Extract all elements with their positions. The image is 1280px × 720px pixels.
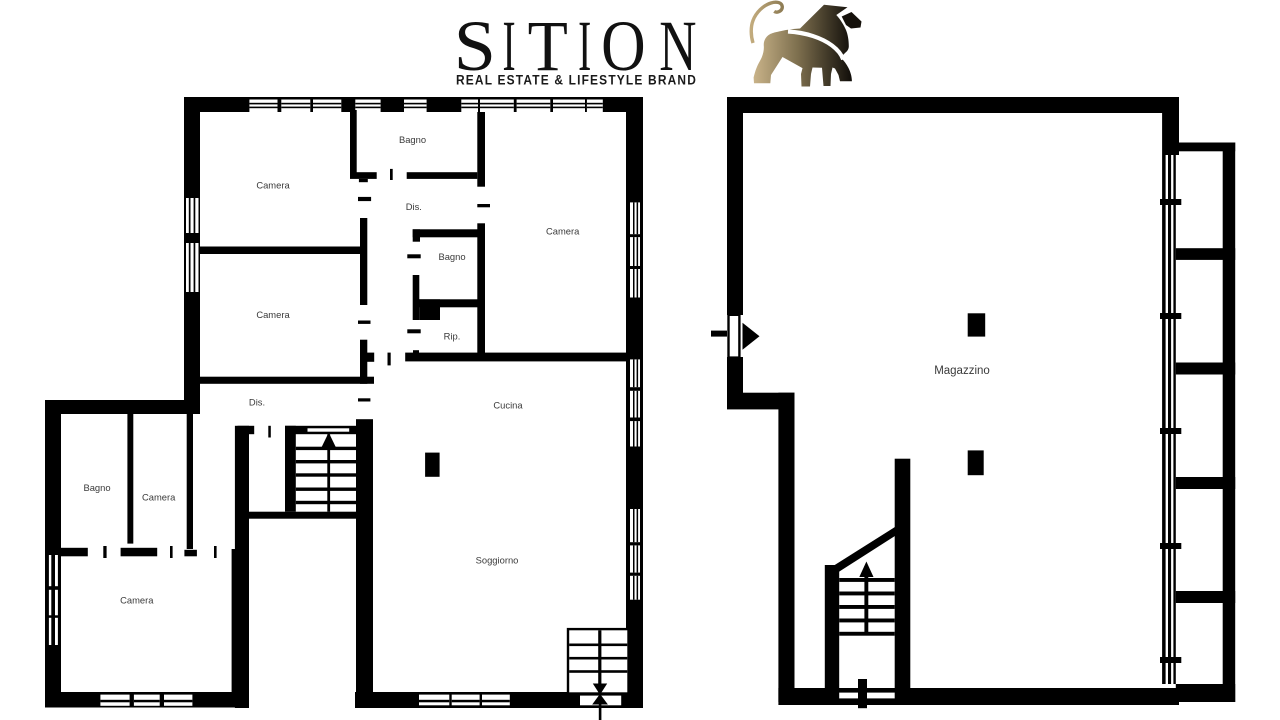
- svg-text:Bagno: Bagno: [399, 134, 426, 145]
- svg-text:Camera: Camera: [142, 491, 176, 502]
- svg-text:REAL ESTATE & LIFESTYLE BRAND: REAL ESTATE & LIFESTYLE BRAND: [456, 73, 697, 89]
- svg-text:Camera: Camera: [256, 309, 290, 320]
- svg-text:Rip.: Rip.: [444, 330, 461, 341]
- svg-text:Camera: Camera: [120, 594, 154, 605]
- svg-text:Dis.: Dis.: [406, 201, 422, 212]
- svg-text:Magazzino: Magazzino: [934, 365, 990, 377]
- svg-text:Bagno: Bagno: [438, 251, 465, 262]
- svg-text:Camera: Camera: [256, 179, 290, 190]
- svg-text:Cucina: Cucina: [493, 399, 523, 410]
- svg-text:Dis.: Dis.: [249, 397, 265, 408]
- svg-text:Camera: Camera: [546, 226, 580, 237]
- svg-text:Bagno: Bagno: [83, 482, 110, 493]
- svg-text:Soggiorno: Soggiorno: [476, 555, 519, 566]
